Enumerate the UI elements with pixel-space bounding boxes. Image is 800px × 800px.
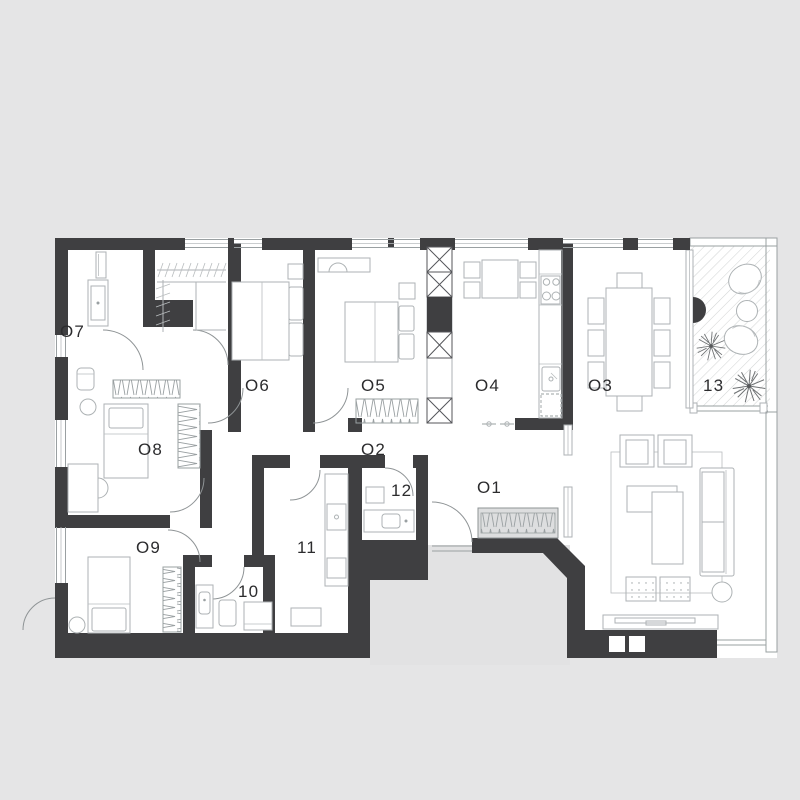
balcony [686,238,777,413]
sofa [700,468,734,576]
side-table [712,582,732,602]
shower [244,602,272,630]
chair [520,282,536,298]
room-label-10: 10 [238,582,259,601]
wardrobe [178,404,200,468]
chair [617,396,642,411]
toilet [77,368,94,390]
chair [464,282,480,298]
coffee-table [652,492,683,564]
pillow [289,323,303,356]
desk [68,464,98,512]
room-label-o6: O6 [245,376,270,395]
balcony-table [737,301,758,322]
closet-unit [427,272,452,297]
cabinet [96,252,106,278]
duct [427,297,452,332]
chair [588,298,604,324]
toilet [219,600,236,626]
room-label-o8: O8 [138,440,163,459]
room-label-o3: O3 [588,376,613,395]
appliance [327,558,346,578]
chair [464,262,480,278]
chair [520,262,536,278]
room-label-o5: O5 [361,376,386,395]
room-label-o1: O1 [477,478,502,497]
washing-machine [327,504,346,530]
armchair [620,435,654,467]
room-label-o9: O9 [136,538,161,557]
closet-unit [427,332,452,358]
shelf [291,608,321,626]
room-label-11: 11 [297,538,317,557]
pillow [399,306,414,331]
pillow [109,408,143,428]
closet-unit [427,247,452,272]
room-label-o7: O7 [60,322,85,341]
entrance-hall [478,508,558,538]
pouf [660,577,690,601]
pouf [626,577,656,601]
bed [232,282,289,360]
chair [654,298,670,324]
nightstand [399,283,415,299]
pillow [289,287,303,320]
pillow [92,608,126,631]
floor-plan-svg: O7 O6 O5 O4 O3 13 O2 O8 O1 12 O9 11 10 [0,0,800,800]
pillow [399,334,414,359]
chair [654,362,670,388]
wardrobe [356,399,418,423]
room-label-o2: O2 [361,440,386,459]
chair [654,330,670,356]
room-label-13: 13 [703,376,724,395]
wardrobe [163,567,181,632]
stool [80,399,96,415]
chair [588,330,604,356]
cistern [366,487,384,503]
nightstand [288,264,303,279]
stool [69,617,85,633]
closet-unit [427,398,452,423]
armchair [658,435,692,467]
kitchen-table [482,260,518,298]
bed [345,302,398,362]
chair [617,273,642,288]
room-label-12: 12 [391,481,412,500]
wardrobe [113,380,180,398]
room-label-o4: O4 [475,376,500,395]
